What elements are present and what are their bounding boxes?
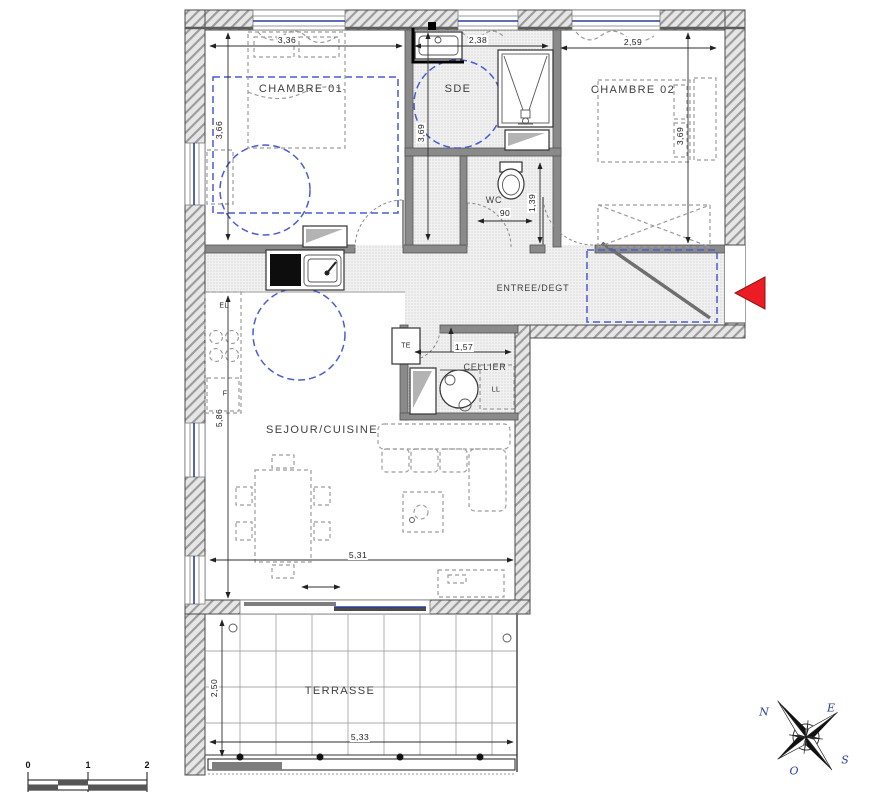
- window-chambre01-left: [185, 143, 205, 205]
- furniture-chambre02: [598, 78, 716, 247]
- window-sejour-left: [185, 423, 205, 477]
- scale-bar: [28, 772, 147, 792]
- dim-sejour-width: 5,31: [348, 550, 368, 560]
- terrasse-railing: [205, 754, 517, 775]
- radiator-hall: [303, 226, 347, 247]
- dim-chambre01-height: 3,66: [214, 120, 224, 140]
- compass-east-label: E: [827, 702, 835, 715]
- dim-chambre02-height: 3,69: [675, 126, 685, 146]
- compass-rose: [749, 676, 863, 792]
- scale-label-2: 2: [144, 760, 149, 770]
- equipment-label-te: TE: [401, 343, 411, 350]
- scale-label-0: 0: [25, 760, 30, 770]
- floorplan-drawing: [0, 0, 871, 800]
- equipment-label-f: F: [223, 391, 228, 398]
- dim-sde-width: 2,38: [468, 35, 488, 45]
- washbasin: [415, 32, 462, 59]
- sliding-door-terrasse: [240, 587, 430, 614]
- room-label-sde: SDE: [445, 83, 472, 95]
- dim-cellier-width: 1,57: [454, 342, 474, 352]
- room-label-wc: WC: [486, 195, 503, 205]
- floorplan-page: CHAMBRE 01 SDE CHAMBRE 02 WC ENTREE/DEGT…: [0, 0, 871, 800]
- dim-terrasse-height: 2,50: [209, 678, 219, 698]
- radiator-cellier: [410, 368, 436, 414]
- window-chambre02-top: [572, 10, 660, 42]
- sofa: [378, 424, 510, 511]
- coffee-table: [403, 492, 443, 532]
- compass-west-label: O: [789, 765, 798, 778]
- furniture-sejour: [236, 424, 510, 597]
- room-label-chambre01: CHAMBRE 01: [259, 83, 343, 95]
- dim-chambre02-width: 2,59: [623, 37, 643, 47]
- dim-sde-height: 3,69: [416, 123, 426, 143]
- dim-terrasse-width: 5,33: [350, 732, 370, 742]
- room-label-chambre02: CHAMBRE 02: [591, 84, 675, 96]
- room-label-sejour: SEJOUR/CUISINE: [266, 424, 378, 436]
- scale-label-1: 1: [85, 760, 90, 770]
- compass-south-label: S: [841, 754, 849, 767]
- room-label-entree: ENTREE/DEGT: [497, 283, 570, 293]
- room-label-cellier: CELLIER: [463, 362, 506, 372]
- shower: [498, 50, 553, 127]
- dim-wc-height: 1,39: [527, 193, 537, 213]
- wc-fixtures: [498, 162, 524, 199]
- dim-wc-width: 90: [499, 208, 511, 218]
- hotplates: [210, 331, 239, 362]
- room-label-terrasse: TERRASSE: [305, 685, 376, 697]
- door-chambre01: [355, 200, 403, 248]
- dim-chambre01-width: 3,36: [277, 35, 297, 45]
- kitchen-sink-unit: [266, 250, 344, 290]
- equipment-label-ll: LL: [492, 387, 500, 394]
- compass-north-label: N: [759, 706, 769, 719]
- radiator-sde: [505, 130, 549, 150]
- closet-chambre02: [598, 205, 710, 247]
- dim-sejour-height: 5,86: [214, 408, 224, 428]
- door-sejour-left: [185, 556, 205, 604]
- equipment-label-el: EL: [219, 303, 228, 310]
